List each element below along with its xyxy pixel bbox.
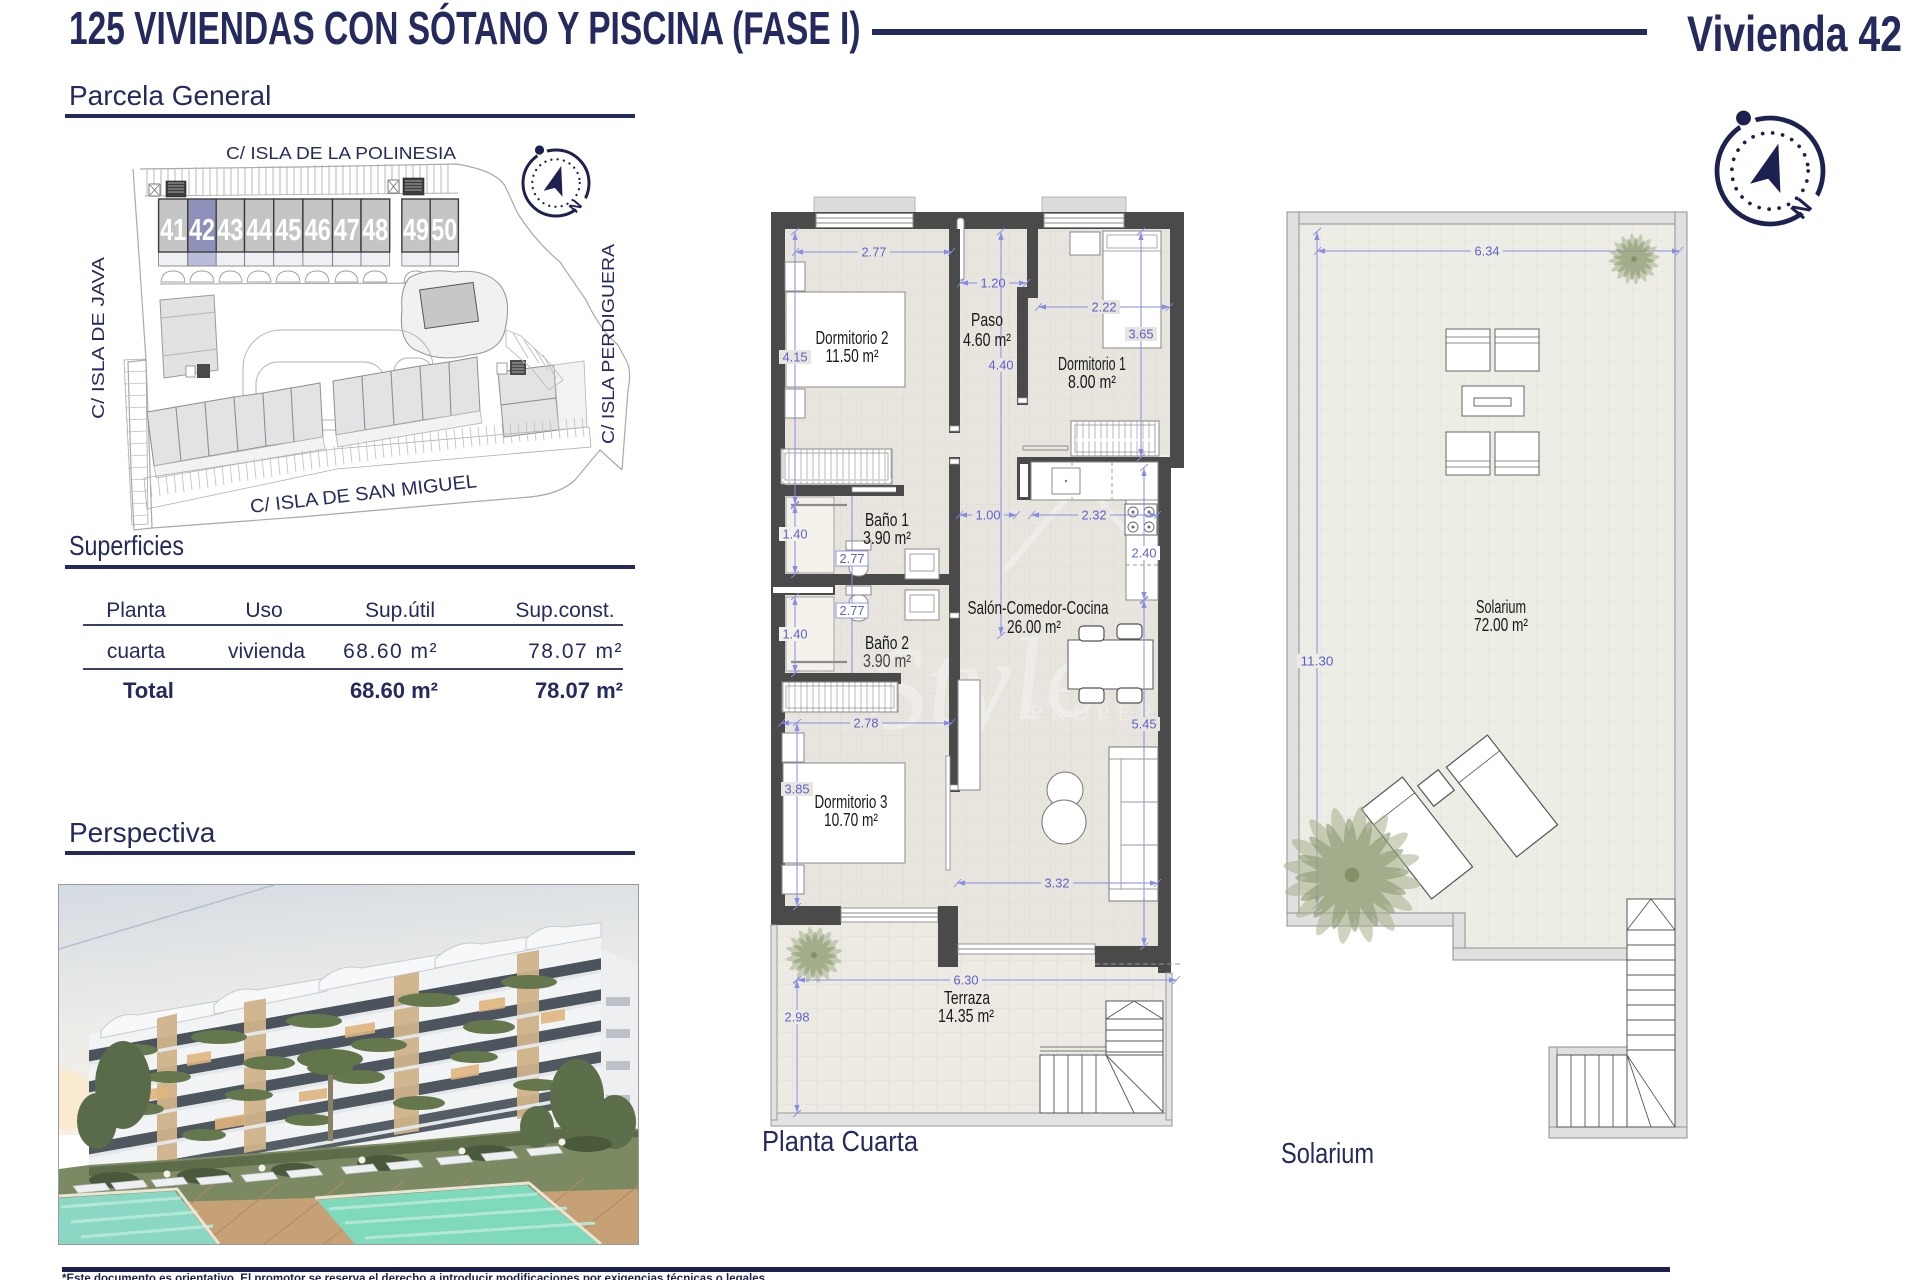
svg-text:1.20: 1.20 [981,277,1006,291]
svg-text:2.77: 2.77 [840,552,865,566]
svg-text:46: 46 [305,212,331,247]
svg-text:Terraza: Terraza [944,988,991,1008]
svg-text:2.32: 2.32 [1082,509,1107,523]
svg-text:2.98: 2.98 [785,1011,810,1025]
svg-text:4.15: 4.15 [783,351,808,365]
svg-text:14.35 m²: 14.35 m² [938,1006,994,1026]
svg-text:Baño 2: Baño 2 [865,633,909,653]
svg-text:11.50 m²: 11.50 m² [826,346,879,366]
svg-text:5.45: 5.45 [1132,718,1157,732]
svg-text:2.77: 2.77 [840,604,865,618]
svg-text:26.00 m²: 26.00 m² [1007,617,1061,637]
svg-text:48: 48 [362,212,388,247]
svg-text:4.60 m²: 4.60 m² [963,330,1011,350]
svg-text:Dormitorio 2: Dormitorio 2 [816,328,889,348]
svg-text:50: 50 [431,212,457,247]
svg-text:1.00: 1.00 [976,509,1001,523]
svg-text:72.00 m²: 72.00 m² [1474,615,1528,635]
svg-text:1.40: 1.40 [783,528,808,542]
svg-text:Baño 1: Baño 1 [865,510,909,530]
svg-text:45: 45 [275,212,301,247]
svg-text:Paso: Paso [971,310,1003,330]
svg-text:Salón-Comedor-Cocina: Salón-Comedor-Cocina [968,598,1110,618]
svg-text:1.40: 1.40 [783,628,808,642]
svg-text:4.40: 4.40 [989,359,1014,373]
svg-text:Dormitorio 3: Dormitorio 3 [815,792,888,812]
svg-text:43: 43 [217,212,243,247]
svg-text:C/ ISLA PERDIGUERA: C/ ISLA PERDIGUERA [598,244,618,444]
svg-text:2.40: 2.40 [1132,547,1157,561]
svg-text:3.90 m²: 3.90 m² [863,528,911,548]
svg-text:8.00 m²: 8.00 m² [1068,372,1116,392]
svg-text:6.34: 6.34 [1475,245,1500,259]
svg-text:3.85: 3.85 [785,783,810,797]
svg-text:3.65: 3.65 [1129,328,1154,342]
svg-text:Solarium: Solarium [1476,597,1526,617]
svg-text:6.30: 6.30 [954,974,979,988]
svg-text:11.30: 11.30 [1301,655,1334,669]
svg-text:49: 49 [403,212,429,247]
svg-text:Dormitorio 1: Dormitorio 1 [1058,354,1126,374]
svg-text:42: 42 [189,212,215,247]
svg-text:41: 41 [160,212,186,247]
svg-text:3.90 m²: 3.90 m² [863,651,911,671]
svg-text:44: 44 [246,212,273,247]
svg-text:C/ ISLA DE LA POLINESIA: C/ ISLA DE LA POLINESIA [226,143,456,163]
svg-text:2.78: 2.78 [854,717,879,731]
svg-text:2.77: 2.77 [862,246,887,260]
svg-text:47: 47 [334,212,360,247]
svg-text:10.70 m²: 10.70 m² [824,810,878,830]
svg-text:2.22: 2.22 [1092,301,1117,315]
svg-text:C/ ISLA DE JAVA: C/ ISLA DE JAVA [88,257,108,419]
svg-text:3.32: 3.32 [1045,877,1070,891]
